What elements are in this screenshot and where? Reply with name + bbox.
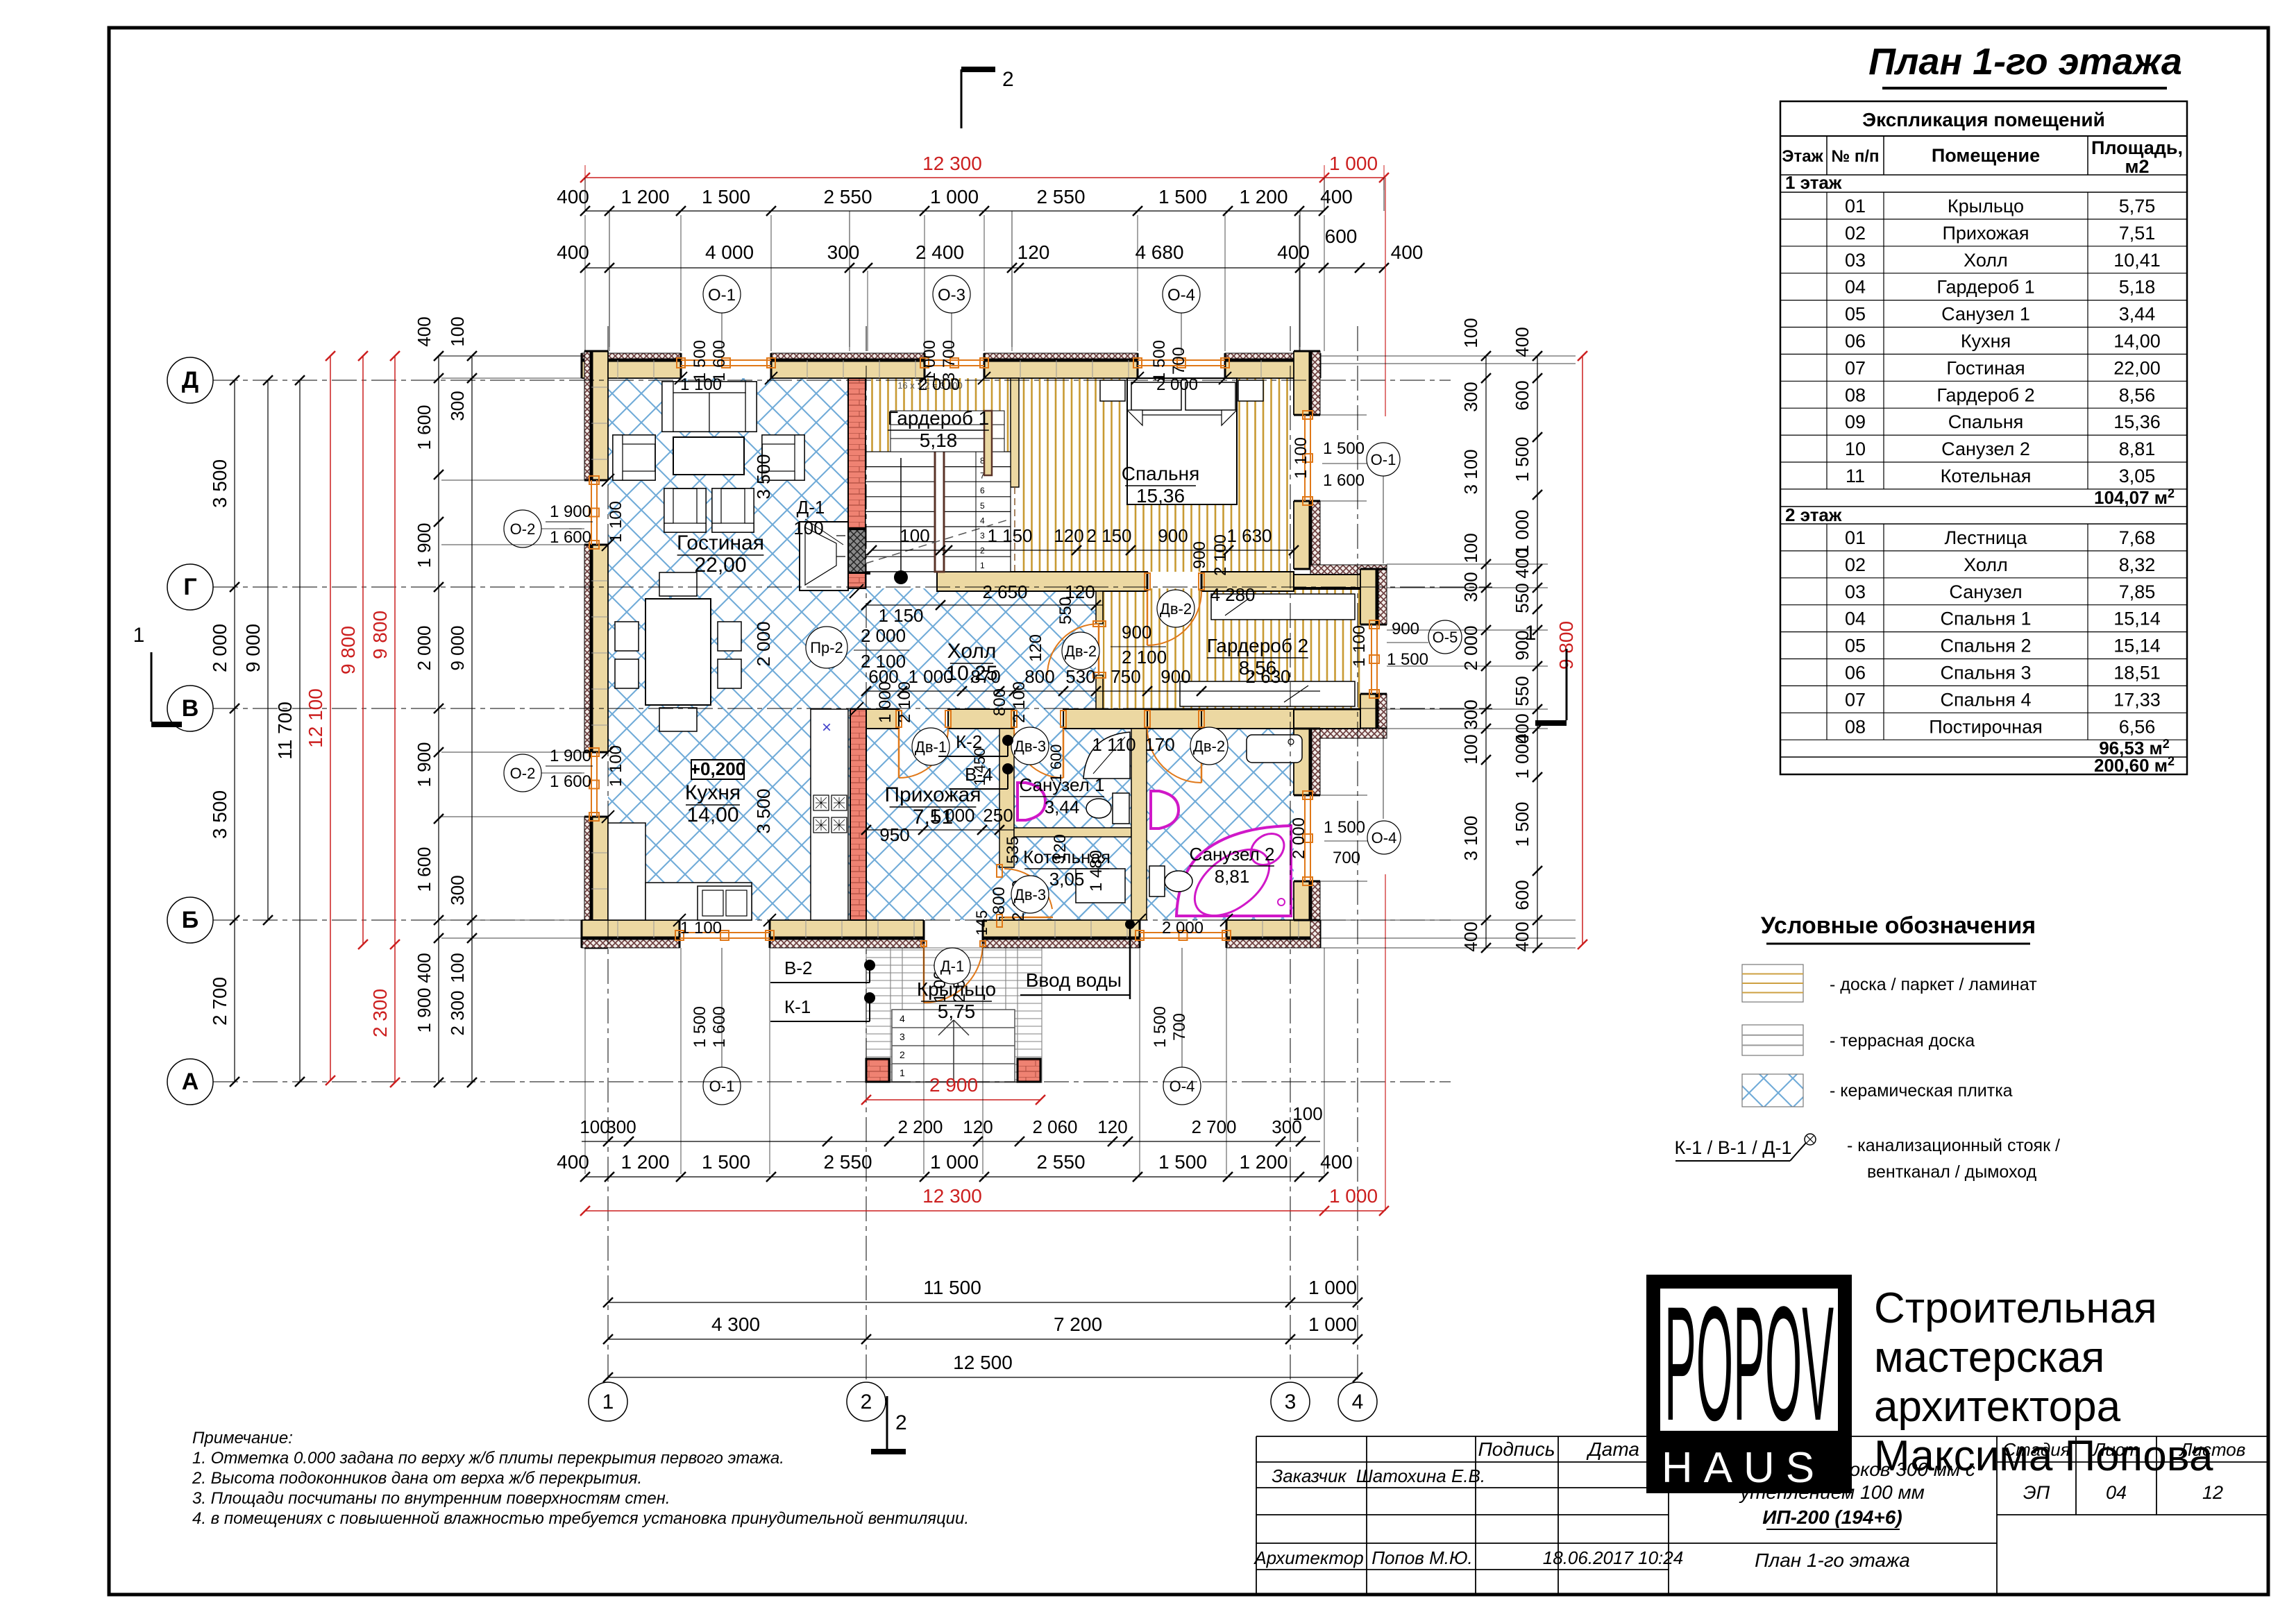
- svg-text:300: 300: [1460, 699, 1481, 729]
- svg-text:3 500: 3 500: [209, 790, 230, 839]
- svg-text:4 280: 4 280: [1210, 584, 1255, 605]
- svg-text:Д-1: Д-1: [797, 497, 825, 518]
- svg-text:400: 400: [557, 241, 589, 263]
- svg-text:900: 900: [1158, 525, 1188, 546]
- svg-text:Санузел 1: Санузел 1: [1941, 304, 2030, 325]
- svg-text:6: 6: [980, 486, 985, 495]
- svg-text:100: 100: [580, 1116, 609, 1137]
- svg-text:145: 145: [973, 910, 990, 936]
- svg-text:Холл: Холл: [947, 640, 997, 663]
- svg-text:О-4: О-4: [1170, 1078, 1195, 1095]
- svg-text:План 1-го этажа: План 1-го этажа: [1755, 1549, 1910, 1571]
- svg-text:1 630: 1 630: [1226, 525, 1272, 546]
- svg-text:1 150: 1 150: [987, 525, 1032, 546]
- svg-text:Спальня 2: Спальня 2: [1940, 636, 2031, 656]
- svg-text:15,14: 15,14: [2113, 636, 2161, 656]
- svg-text:2 100: 2 100: [895, 681, 914, 723]
- svg-text:3 500: 3 500: [753, 788, 774, 833]
- svg-text:1: 1: [900, 1067, 905, 1078]
- svg-text:Санузел 2: Санузел 2: [1190, 844, 1275, 865]
- svg-text:архитектора: архитектора: [1874, 1383, 2121, 1431]
- svg-text:05: 05: [1845, 636, 1866, 656]
- svg-text:04: 04: [1845, 609, 1866, 629]
- svg-text:К-1 / В-1 / Д-1: К-1 / В-1 / Д-1: [1674, 1137, 1791, 1158]
- svg-text:В: В: [182, 695, 199, 722]
- svg-text:900: 900: [1392, 620, 1419, 638]
- svg-text:Гостиная: Гостиная: [677, 532, 764, 554]
- svg-text:Прихожая: Прихожая: [1942, 223, 2029, 244]
- svg-text:Примечание:: Примечание:: [192, 1429, 293, 1447]
- svg-text:8,56: 8,56: [1239, 657, 1277, 679]
- svg-text:1 110: 1 110: [1092, 734, 1136, 755]
- svg-text:2. Высота подоконников дана от: 2. Высота подоконников дана от верха ж/б…: [192, 1469, 642, 1488]
- svg-text:400: 400: [1512, 921, 1533, 951]
- svg-text:3,05: 3,05: [2119, 466, 2156, 486]
- svg-text:м2: м2: [2125, 156, 2150, 177]
- svg-text:3. Площади посчитаны по внутре: 3. Площади посчитаны по внутренним повер…: [192, 1489, 670, 1508]
- svg-text:Максима Попова: Максима Попова: [1874, 1432, 2213, 1480]
- svg-text:04: 04: [2106, 1482, 2127, 1503]
- svg-text:600: 600: [1512, 880, 1533, 910]
- svg-text:О-2: О-2: [510, 520, 536, 538]
- svg-text:100: 100: [1460, 318, 1481, 348]
- svg-text:18.06.2017 10:24: 18.06.2017 10:24: [1543, 1547, 1683, 1568]
- svg-text:1 600: 1 600: [414, 405, 434, 450]
- svg-text:Архитектор: Архитектор: [1253, 1547, 1363, 1568]
- svg-text:2 650: 2 650: [982, 581, 1027, 602]
- svg-text:170: 170: [1145, 734, 1174, 755]
- svg-text:10,41: 10,41: [2113, 250, 2161, 271]
- svg-text:1 900: 1 900: [414, 987, 434, 1033]
- svg-text:Кухня: Кухня: [685, 781, 741, 804]
- svg-text:800: 800: [990, 887, 1008, 915]
- svg-text:07: 07: [1845, 357, 1866, 378]
- svg-text:О-1: О-1: [1371, 451, 1396, 468]
- svg-text:+0,200: +0,200: [690, 758, 745, 779]
- svg-text:ИП-200 (194+6): ИП-200 (194+6): [1762, 1506, 1902, 1528]
- svg-text:2 000: 2 000: [1162, 919, 1204, 937]
- svg-text:Прихожая: Прихожая: [884, 783, 981, 806]
- svg-text:1 500: 1 500: [1158, 186, 1207, 207]
- svg-text:2 000: 2 000: [1290, 817, 1308, 859]
- svg-text:мастерская: мастерская: [1874, 1334, 2104, 1382]
- svg-text:План 1-го этажа: План 1-го этажа: [1868, 41, 2182, 83]
- svg-text:К-2: К-2: [956, 731, 982, 752]
- svg-text:Дв-3: Дв-3: [1014, 886, 1046, 903]
- svg-text:Дв-2: Дв-2: [1193, 738, 1225, 755]
- svg-text:Дв-1: Дв-1: [915, 738, 947, 756]
- svg-text:Пр-2: Пр-2: [810, 639, 843, 656]
- svg-text:22,00: 22,00: [694, 554, 746, 577]
- svg-text:Дв-2: Дв-2: [1065, 643, 1097, 660]
- svg-text:Строительная: Строительная: [1874, 1284, 2157, 1332]
- svg-text:2 000: 2 000: [1460, 625, 1481, 670]
- svg-text:О-3: О-3: [938, 286, 965, 305]
- svg-text:1 100: 1 100: [680, 375, 722, 394]
- svg-text:8,32: 8,32: [2119, 554, 2156, 575]
- svg-text:Площадь,: Площадь,: [2091, 137, 2183, 158]
- svg-text:7,68: 7,68: [2119, 527, 2156, 548]
- svg-text:01: 01: [1845, 196, 1866, 216]
- svg-text:А: А: [182, 1069, 199, 1095]
- svg-text:1 200: 1 200: [1239, 1151, 1288, 1173]
- svg-text:В-4: В-4: [965, 764, 993, 785]
- svg-text:1 500: 1 500: [702, 1151, 750, 1173]
- svg-text:750: 750: [1111, 666, 1140, 687]
- svg-text:4: 4: [900, 1013, 905, 1024]
- svg-text:1 600: 1 600: [1323, 471, 1365, 490]
- svg-text:Санузел: Санузел: [1949, 581, 2022, 602]
- svg-text:18,51: 18,51: [2113, 663, 2161, 683]
- svg-text:Подпись: Подпись: [1478, 1438, 1555, 1460]
- svg-text:2: 2: [1002, 68, 1014, 91]
- svg-text:3 100: 3 100: [1460, 815, 1481, 860]
- svg-text:120: 120: [963, 1116, 993, 1137]
- svg-text:800: 800: [990, 688, 1009, 716]
- svg-text:Д: Д: [182, 367, 199, 393]
- svg-text:1 000: 1 000: [1329, 153, 1378, 174]
- svg-text:3: 3: [900, 1031, 905, 1042]
- svg-text:12 100: 12 100: [305, 688, 326, 748]
- svg-text:9 000: 9 000: [447, 625, 468, 670]
- svg-text:120: 120: [1054, 525, 1083, 546]
- svg-text:2 700: 2 700: [1191, 1116, 1236, 1137]
- svg-text:400: 400: [1391, 241, 1424, 263]
- svg-text:2: 2: [900, 1049, 905, 1060]
- svg-text:06: 06: [1845, 331, 1866, 352]
- svg-text:1 200: 1 200: [621, 1151, 669, 1173]
- svg-text:6,56: 6,56: [2119, 716, 2156, 737]
- svg-text:Б: Б: [182, 907, 199, 933]
- svg-text:Гардероб 2: Гардероб 2: [1207, 635, 1309, 656]
- svg-text:100: 100: [1460, 533, 1481, 563]
- svg-text:11 700: 11 700: [274, 702, 296, 760]
- svg-text:- доска / паркет / ламинат: - доска / паркет / ламинат: [1830, 975, 2037, 994]
- svg-text:15,14: 15,14: [2113, 609, 2161, 629]
- svg-text:3 100: 3 100: [1460, 449, 1481, 494]
- svg-text:Гардероб 2: Гардероб 2: [1936, 384, 2034, 405]
- svg-text:8,81: 8,81: [2119, 439, 2156, 459]
- svg-text:2 100: 2 100: [1010, 681, 1029, 723]
- svg-text:200,60 м2: 200,60 м2: [2094, 754, 2175, 776]
- svg-text:1 500: 1 500: [1158, 1151, 1207, 1173]
- svg-text:О-1: О-1: [709, 1078, 735, 1095]
- svg-text:300: 300: [447, 391, 468, 420]
- svg-text:02: 02: [1845, 223, 1866, 244]
- svg-text:2 900: 2 900: [929, 1074, 978, 1096]
- svg-text:1 600: 1 600: [550, 528, 591, 547]
- svg-text:400: 400: [1320, 186, 1353, 207]
- svg-text:2 060: 2 060: [1032, 1116, 1077, 1137]
- svg-text:О-5: О-5: [1433, 629, 1458, 646]
- svg-text:250: 250: [983, 805, 1013, 826]
- svg-text:1 900: 1 900: [414, 522, 434, 568]
- svg-text:800: 800: [1024, 666, 1054, 687]
- svg-text:600: 600: [1512, 380, 1533, 410]
- svg-text:1: 1: [133, 624, 145, 647]
- svg-text:10,25: 10,25: [945, 662, 997, 685]
- svg-text:Спальня: Спальня: [1948, 411, 2024, 432]
- svg-text:Заказчик: Заказчик: [1272, 1465, 1347, 1486]
- svg-text:1 100: 1 100: [1292, 437, 1310, 479]
- svg-text:06: 06: [1845, 663, 1866, 683]
- svg-text:1 200: 1 200: [1239, 186, 1288, 207]
- svg-text:1 150: 1 150: [878, 605, 923, 626]
- svg-text:120: 120: [1018, 241, 1050, 263]
- svg-text:9 800: 9 800: [337, 626, 359, 674]
- svg-text:2: 2: [861, 1391, 872, 1413]
- svg-text:1: 1: [602, 1391, 614, 1413]
- svg-text:О-4: О-4: [1167, 286, 1195, 305]
- svg-text:Котельная: Котельная: [1023, 847, 1111, 867]
- svg-text:2 400: 2 400: [915, 241, 964, 263]
- svg-text:550: 550: [1056, 597, 1075, 624]
- svg-text:2 550: 2 550: [1036, 1151, 1085, 1173]
- svg-text:12: 12: [2202, 1482, 2223, 1503]
- svg-text:900: 900: [1122, 622, 1151, 643]
- svg-text:8,81: 8,81: [1215, 866, 1250, 887]
- svg-text:4: 4: [980, 516, 985, 525]
- svg-text:Г: Г: [183, 574, 196, 600]
- svg-text:2 700: 2 700: [209, 977, 230, 1026]
- svg-text:1 000: 1 000: [1512, 733, 1533, 779]
- svg-text:700: 700: [1170, 347, 1188, 375]
- svg-text:Ввод воды: Ввод воды: [1026, 969, 1122, 991]
- svg-text:Лестница: Лестница: [1944, 527, 2027, 548]
- svg-text:Спальня 4: Спальня 4: [1940, 689, 2031, 710]
- svg-text:вентканал / дымоход: вентканал / дымоход: [1867, 1162, 2037, 1182]
- svg-text:Дв-3: Дв-3: [1014, 738, 1046, 755]
- svg-text:1 этаж: 1 этаж: [1785, 172, 1842, 193]
- svg-text:1 500: 1 500: [1324, 818, 1365, 837]
- svg-text:POPOV: POPOV: [1664, 1273, 1834, 1454]
- svg-text:03: 03: [1845, 581, 1866, 602]
- svg-text:4. в помещениях с повышенной в: 4. в помещениях с повышенной влажностью …: [192, 1509, 969, 1528]
- svg-text:400: 400: [414, 953, 434, 983]
- svg-text:100: 100: [900, 525, 929, 546]
- svg-text:400: 400: [1320, 1151, 1353, 1173]
- svg-text:2 100: 2 100: [1211, 534, 1230, 576]
- svg-text:09: 09: [1845, 411, 1866, 432]
- svg-text:7,51: 7,51: [2119, 223, 2156, 244]
- svg-text:Крыльцо: Крыльцо: [1948, 196, 2024, 216]
- svg-text:12 300: 12 300: [922, 153, 982, 174]
- svg-text:Попов М.Ю.: Попов М.Ю.: [1371, 1547, 1473, 1568]
- svg-text:Холл: Холл: [1964, 250, 2008, 271]
- svg-text:Д-1: Д-1: [940, 958, 964, 975]
- svg-text:2 000: 2 000: [414, 625, 434, 670]
- svg-text:1 500: 1 500: [691, 1006, 709, 1048]
- svg-text:Постирочная: Постирочная: [1929, 716, 2042, 737]
- svg-text:1 900: 1 900: [550, 502, 591, 521]
- svg-text:400: 400: [1512, 327, 1533, 357]
- svg-text:03: 03: [1845, 250, 1866, 271]
- svg-text:300: 300: [606, 1116, 636, 1137]
- svg-text:1 900: 1 900: [414, 742, 434, 787]
- svg-text:2 000: 2 000: [753, 621, 774, 666]
- svg-text:2 100: 2 100: [861, 651, 906, 672]
- svg-text:17,33: 17,33: [2113, 689, 2161, 710]
- svg-text:Дата: Дата: [1586, 1438, 1639, 1460]
- svg-text:5,18: 5,18: [2119, 277, 2156, 298]
- svg-text:1 600: 1 600: [550, 772, 591, 791]
- svg-text:1: 1: [980, 561, 985, 570]
- svg-text:4 680: 4 680: [1135, 241, 1183, 263]
- svg-text:Спальня 3: Спальня 3: [1940, 663, 2031, 683]
- svg-text:Условные обозначения: Условные обозначения: [1761, 912, 2036, 939]
- svg-text:2 300: 2 300: [447, 990, 468, 1035]
- svg-text:Этаж: Этаж: [1782, 147, 1823, 166]
- svg-text:12 500: 12 500: [953, 1352, 1013, 1373]
- svg-text:Спальня 1: Спальня 1: [1940, 609, 2031, 629]
- svg-text:1 000: 1 000: [1329, 1185, 1378, 1207]
- svg-text:950: 950: [879, 824, 909, 845]
- svg-text:Гостиная: Гостиная: [1946, 357, 2025, 378]
- svg-text:2 200: 2 200: [897, 1116, 943, 1137]
- svg-text:400: 400: [1277, 241, 1310, 263]
- svg-text:2 550: 2 550: [823, 186, 872, 207]
- svg-text:4 000: 4 000: [705, 241, 754, 263]
- svg-text:3: 3: [980, 531, 985, 541]
- svg-text:- канализационный стояк /: - канализационный стояк /: [1847, 1136, 2060, 1155]
- svg-text:300: 300: [827, 241, 860, 263]
- svg-text:HAUS: HAUS: [1662, 1444, 1825, 1492]
- svg-text:04: 04: [1845, 277, 1866, 298]
- svg-text:2 550: 2 550: [1036, 186, 1085, 207]
- svg-text:1 000: 1 000: [1308, 1277, 1357, 1298]
- svg-text:2 300: 2 300: [369, 989, 391, 1037]
- svg-text:5,75: 5,75: [938, 1001, 976, 1022]
- svg-text:1 500: 1 500: [1512, 436, 1533, 482]
- svg-text:300: 300: [1460, 382, 1481, 411]
- svg-text:1 500: 1 500: [1151, 1006, 1170, 1048]
- svg-text:1 500: 1 500: [1323, 439, 1365, 458]
- svg-text:8,56: 8,56: [2119, 384, 2156, 405]
- svg-text:- террасная доска: - террасная доска: [1830, 1031, 1975, 1051]
- svg-text:100: 100: [1292, 1103, 1322, 1124]
- svg-text:4 300: 4 300: [711, 1314, 760, 1335]
- svg-text:3,05: 3,05: [1049, 869, 1085, 890]
- svg-text:14,00: 14,00: [2113, 331, 2161, 352]
- svg-text:Гардероб 1: Гардероб 1: [888, 407, 990, 429]
- svg-text:3,44: 3,44: [1045, 797, 1080, 817]
- svg-text:700: 700: [1170, 1013, 1189, 1041]
- svg-text:4: 4: [1352, 1391, 1364, 1413]
- svg-text:Санузел 1: Санузел 1: [1020, 774, 1105, 795]
- svg-text:Санузел 2: Санузел 2: [1941, 439, 2030, 459]
- svg-text:О-4: О-4: [1371, 829, 1397, 847]
- svg-text:100: 100: [447, 316, 468, 346]
- svg-text:Шатохина Е.В.: Шатохина Е.В.: [1356, 1465, 1485, 1486]
- svg-text:05: 05: [1845, 304, 1866, 325]
- svg-text:2 150: 2 150: [1086, 525, 1131, 546]
- svg-text:08: 08: [1845, 716, 1866, 737]
- svg-text:3,44: 3,44: [2119, 304, 2156, 325]
- svg-text:7,85: 7,85: [2119, 581, 2156, 602]
- svg-text:1 500: 1 500: [1512, 801, 1533, 847]
- svg-text:1 000: 1 000: [930, 1151, 979, 1173]
- svg-text:Спальня: Спальня: [1122, 463, 1200, 484]
- svg-text:Кухня: Кухня: [1961, 331, 2011, 352]
- svg-text:2 000: 2 000: [918, 375, 960, 394]
- svg-text:02: 02: [1845, 554, 1866, 575]
- svg-text:7 200: 7 200: [1054, 1314, 1102, 1335]
- svg-text:1 000: 1 000: [876, 681, 895, 723]
- svg-text:2 000: 2 000: [861, 625, 906, 646]
- svg-text:№ п/п: № п/п: [1831, 147, 1879, 166]
- svg-text:550: 550: [1512, 676, 1533, 706]
- svg-text:600: 600: [1325, 226, 1358, 247]
- svg-text:11: 11: [1846, 466, 1865, 486]
- svg-text:2 этаж: 2 этаж: [1785, 504, 1842, 525]
- svg-text:120: 120: [1097, 1116, 1127, 1137]
- svg-text:300: 300: [447, 875, 468, 905]
- svg-text:15,36: 15,36: [2113, 411, 2161, 432]
- svg-text:10: 10: [1845, 439, 1866, 459]
- svg-text:1 600: 1 600: [710, 1006, 729, 1048]
- svg-text:700: 700: [1333, 849, 1360, 867]
- svg-text:Гардероб 1: Гардероб 1: [1936, 277, 2034, 298]
- svg-text:1 500: 1 500: [702, 186, 750, 207]
- svg-text:1 100: 1 100: [607, 501, 625, 543]
- svg-text:Котельная: Котельная: [1941, 466, 2032, 486]
- svg-text:В-2: В-2: [784, 958, 812, 978]
- svg-text:120: 120: [1027, 634, 1045, 662]
- svg-text:2 000: 2 000: [209, 624, 230, 672]
- svg-text:Дв-2: Дв-2: [1160, 600, 1192, 618]
- svg-text:400: 400: [557, 186, 589, 207]
- svg-text:3: 3: [1285, 1391, 1297, 1413]
- svg-text:22,00: 22,00: [2113, 357, 2161, 378]
- svg-text:1 000: 1 000: [1308, 1314, 1357, 1335]
- svg-text:3 500: 3 500: [209, 459, 230, 508]
- svg-text:1: 1: [1525, 622, 1537, 645]
- svg-text:5: 5: [980, 501, 985, 511]
- svg-text:1 600: 1 600: [414, 847, 434, 892]
- svg-text:01: 01: [1845, 527, 1866, 548]
- svg-text:1 100: 1 100: [680, 919, 722, 937]
- svg-text:- керамическая плитка: - керамическая плитка: [1830, 1081, 2013, 1101]
- svg-text:100: 100: [1460, 734, 1481, 764]
- svg-text:104,07 м2: 104,07 м2: [2094, 486, 2175, 508]
- svg-text:9 000: 9 000: [242, 624, 264, 672]
- svg-text:2: 2: [895, 1411, 907, 1434]
- svg-text:Помещение: Помещение: [1932, 145, 2040, 166]
- svg-text:ЭП: ЭП: [2023, 1482, 2050, 1503]
- svg-text:1. Отметка 0.000 задана по вер: 1. Отметка 0.000 задана по верху ж/б пли…: [192, 1449, 784, 1468]
- svg-text:5,18: 5,18: [920, 430, 958, 451]
- svg-text:2 100: 2 100: [1122, 647, 1167, 668]
- svg-text:1 200: 1 200: [621, 186, 669, 207]
- svg-text:2 550: 2 550: [823, 1151, 872, 1173]
- svg-text:900: 900: [1160, 666, 1190, 687]
- svg-text:Холл: Холл: [1964, 554, 2008, 575]
- svg-text:15,36: 15,36: [1136, 485, 1185, 507]
- svg-text:07: 07: [1845, 689, 1866, 710]
- svg-text:400: 400: [557, 1151, 589, 1173]
- svg-text:Экспликация помещений: Экспликация помещений: [1862, 109, 2105, 130]
- svg-text:900: 900: [1190, 541, 1209, 569]
- svg-text:300: 300: [1460, 572, 1481, 602]
- svg-text:535: 535: [1004, 836, 1022, 864]
- svg-text:100: 100: [447, 953, 468, 983]
- svg-text:К-1: К-1: [784, 996, 811, 1017]
- svg-text:1 000: 1 000: [1512, 509, 1533, 554]
- svg-text:3 500: 3 500: [753, 454, 774, 499]
- svg-text:×: ×: [822, 718, 832, 737]
- svg-text:О-1: О-1: [708, 286, 736, 305]
- svg-text:400: 400: [414, 316, 434, 346]
